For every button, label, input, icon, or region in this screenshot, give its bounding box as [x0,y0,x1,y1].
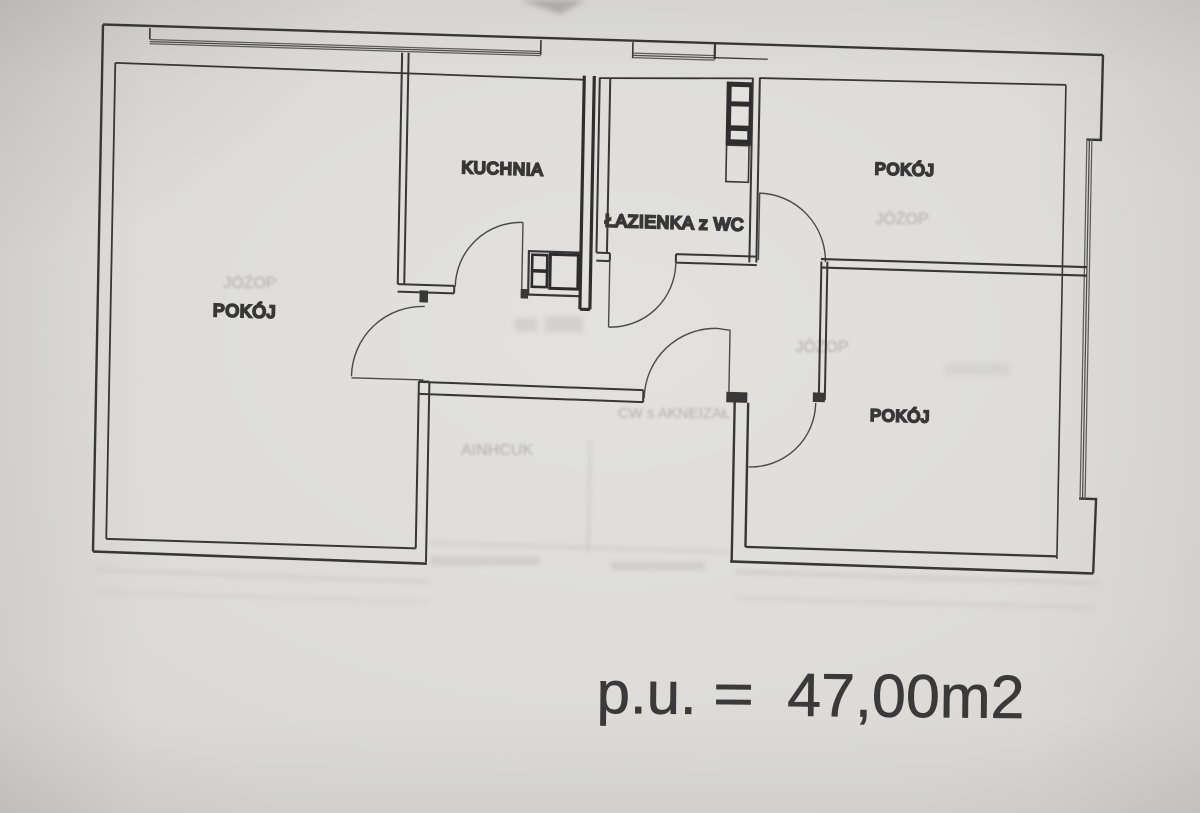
svg-text:AINHCUK: AINHCUK [461,442,533,459]
svg-text:JÓŹOP: JÓŹOP [795,337,848,356]
svg-text:KUCHNIA: KUCHNIA [461,158,543,179]
svg-text:47,00m2: 47,00m2 [787,661,1025,731]
svg-text:JÓŹOP: JÓŹOP [223,273,276,292]
svg-text:=: = [713,660,755,727]
svg-text:JÓŹOP: JÓŹOP [875,209,928,228]
svg-text:POKÓJ: POKÓJ [213,299,277,322]
svg-text:POKÓJ: POKÓJ [875,159,935,180]
svg-text:ŁAZIENKA z WC: ŁAZIENKA z WC [605,210,744,234]
svg-text:p.u.: p.u. [596,659,697,727]
svg-text:POKÓJ: POKÓJ [870,406,930,427]
svg-text:CW s AKNEIZAŁ: CW s AKNEIZAŁ [618,405,731,422]
